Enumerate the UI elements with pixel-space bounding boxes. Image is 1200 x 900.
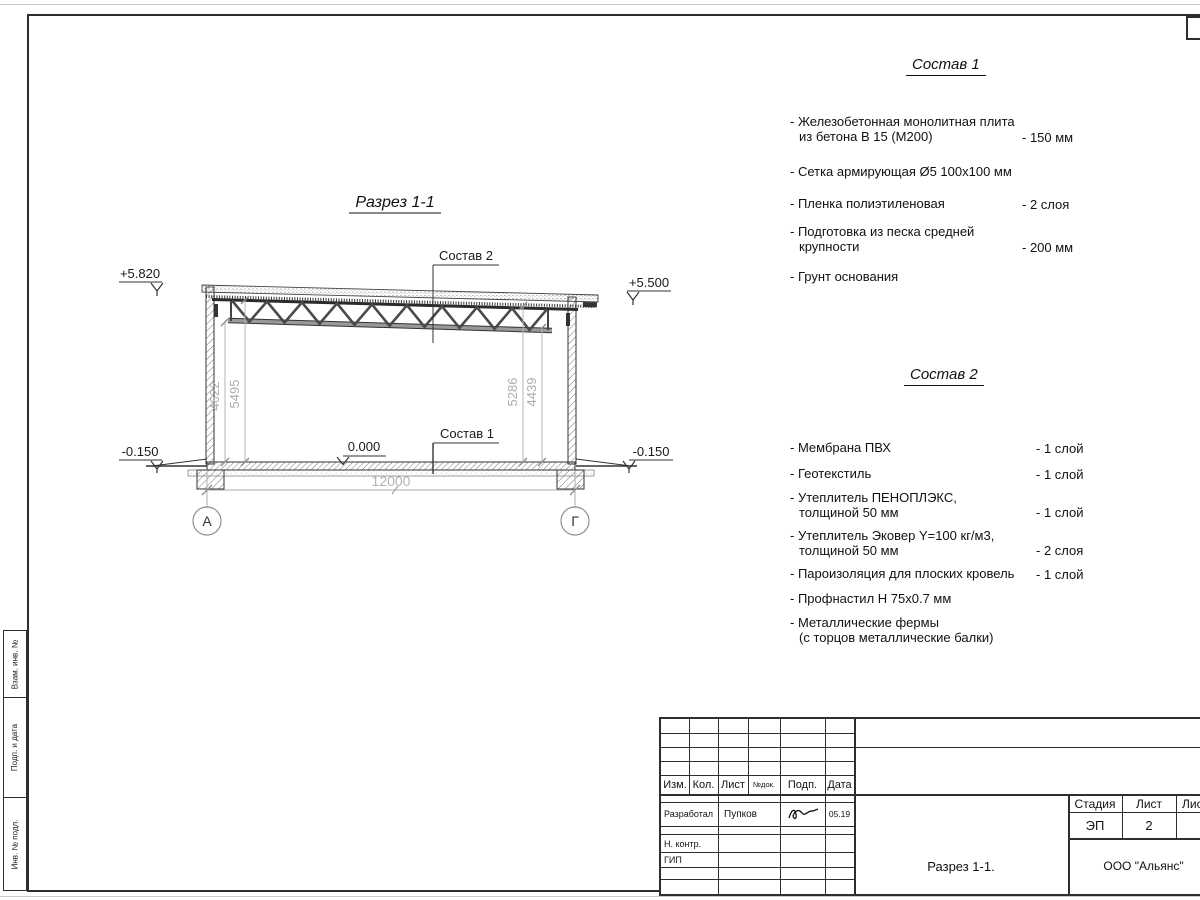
frame-box-podp-data: Подп. и дата <box>3 697 27 798</box>
tb-header-list: Лист <box>718 776 748 793</box>
item-text: (с торцов металлические балки) <box>790 630 1120 645</box>
tb-header-podp: Подп. <box>780 776 825 793</box>
elev-mark-top-left: +5.820 <box>119 266 163 296</box>
item-text: - Грунт основания <box>790 269 1100 284</box>
elev-mark-bottom-left: -0.150 <box>119 444 163 473</box>
tb-list-label: Лист <box>1122 795 1176 812</box>
item-text: - Подготовка из песка средней <box>790 224 1100 239</box>
elev-value: 0.000 <box>348 439 381 454</box>
tb-header-kol: Кол. <box>689 776 718 793</box>
tb-company: ООО "Альянс" <box>1068 839 1200 893</box>
section-drawing: Разрез 1-1 <box>100 185 690 555</box>
tb-nkontr: Н. контр. <box>661 835 718 852</box>
tb-gip: ГИП <box>661 853 718 867</box>
item-value: - 200 мм <box>1022 240 1073 255</box>
item-text: - Утеплитель ПЕНОПЛЭКС, <box>790 490 1120 505</box>
tb-stadia-label: Стадия <box>1068 795 1122 812</box>
wall-left <box>206 287 214 464</box>
paper-edge-top <box>0 4 1200 5</box>
footing-right <box>557 470 584 489</box>
item-value: - 1 слой <box>1036 567 1084 582</box>
list-item: - Утеплитель ПЕНОПЛЭКС, толщиной 50 мм -… <box>790 490 1120 520</box>
list-item: - Металлические фермы (с торцов металлич… <box>790 615 1120 645</box>
list-item: - Подготовка из песка средней крупности … <box>790 224 1100 255</box>
tb-header-izm: Изм. <box>661 776 689 793</box>
tb-list-value: 2 <box>1122 813 1176 837</box>
item-value: - 1 слой <box>1036 441 1084 456</box>
frame-box-label: Подп. и дата <box>11 724 20 771</box>
item-value: - 2 слоя <box>1036 543 1083 558</box>
elev-value: +5.820 <box>120 266 160 281</box>
axis-left-label: А <box>202 513 212 529</box>
list-item: - Грунт основания <box>790 269 1100 285</box>
tb-header-data: Дата <box>825 776 854 793</box>
tb-razrabotal: Разработал <box>661 803 718 825</box>
list-item: - Профнастил Н 75х0.7 мм <box>790 591 1120 607</box>
list-item: - Утеплитель Эковер Y=100 кг/м3, толщино… <box>790 528 1120 558</box>
frame-box-label: Инв. № подл. <box>11 819 20 869</box>
axis-right: Г <box>561 507 589 535</box>
sostav1-ref-label: Состав 1 <box>440 426 494 441</box>
tb-date: 05.19 <box>825 803 854 825</box>
item-text: - Утеплитель Эковер Y=100 кг/м3, <box>790 528 1120 543</box>
paper-edge-bottom <box>0 896 1200 897</box>
frame-box-inv-podl: Инв. № подл. <box>3 797 27 891</box>
tb-doc-title: Разрез 1-1. <box>854 839 1068 893</box>
axis-right-label: Г <box>571 513 579 529</box>
sostav2-heading: Состав 2 <box>904 366 984 386</box>
sostav1-heading: Состав 1 <box>906 56 986 76</box>
corner-stamp-box <box>1186 16 1200 40</box>
tb-stadia-value: ЭП <box>1068 813 1122 837</box>
dim-12000: 12000 <box>372 473 411 489</box>
frame-box-vzam-inv: Взам. инв. № <box>3 630 27 698</box>
section-title-text: Разрез 1-1 <box>355 194 434 211</box>
tb-listov-value <box>1176 813 1200 837</box>
list-item: - Мембрана ПВХ - 1 слой <box>790 440 1120 456</box>
list-item: - Пленка полиэтиленовая - 2 слоя <box>790 196 1100 212</box>
truss-bearing-right <box>566 313 570 326</box>
item-value: - 1 слой <box>1036 467 1084 482</box>
item-text: - Сетка армирующая Ø5 100х100 мм <box>790 164 1100 179</box>
item-text: - Профнастил Н 75х0.7 мм <box>790 591 1120 606</box>
item-value: - 1 слой <box>1036 505 1084 520</box>
tb-razrabotal-name: Пупков <box>718 803 780 825</box>
tb-signature <box>780 803 825 825</box>
elev-value: -0.150 <box>122 444 159 459</box>
sostav2-ref-label: Состав 2 <box>439 248 493 263</box>
item-value: - 150 мм <box>1022 130 1073 145</box>
item-text: - Железобетонная монолитная плита <box>790 114 1100 129</box>
section-title: Разрез 1-1 <box>349 194 441 213</box>
dim-4439: 4439 <box>524 378 539 407</box>
list-item: - Сетка армирующая Ø5 100х100 мм <box>790 164 1100 180</box>
ground-line-right <box>576 459 637 466</box>
tb-listov-label: Листов <box>1176 795 1200 812</box>
elev-mark-top-right: +5.500 <box>627 275 671 305</box>
elev-value: +5.500 <box>629 275 669 290</box>
axis-left: А <box>193 507 221 535</box>
roof-eave-end <box>583 302 597 307</box>
item-value: - 2 слоя <box>1022 197 1069 212</box>
signature-icon <box>786 806 820 822</box>
elev-value: -0.150 <box>633 444 670 459</box>
list-item: - Пароизоляция для плоских кровель - 1 с… <box>790 566 1120 582</box>
span-dimension: 12000 <box>202 472 580 507</box>
truss-bearing-left <box>214 304 218 317</box>
tb-header-ndok: №док. <box>748 776 780 793</box>
item-text: - Металлические фермы <box>790 615 1120 630</box>
frame-box-label: Взам. инв. № <box>11 639 20 689</box>
title-block: Изм. Кол. Лист №док. Подп. Дата Разработ… <box>659 717 1200 896</box>
elev-mark-zero: 0.000 <box>337 439 386 465</box>
list-item: - Железобетонная монолитная плита из бет… <box>790 114 1100 145</box>
dim-4622: 4622 <box>207 382 222 411</box>
elev-mark-bottom-right: -0.150 <box>623 444 673 473</box>
dim-5286: 5286 <box>505 378 520 407</box>
list-item: - Геотекстиль - 1 слой <box>790 466 1120 482</box>
dim-5495: 5495 <box>227 380 242 409</box>
